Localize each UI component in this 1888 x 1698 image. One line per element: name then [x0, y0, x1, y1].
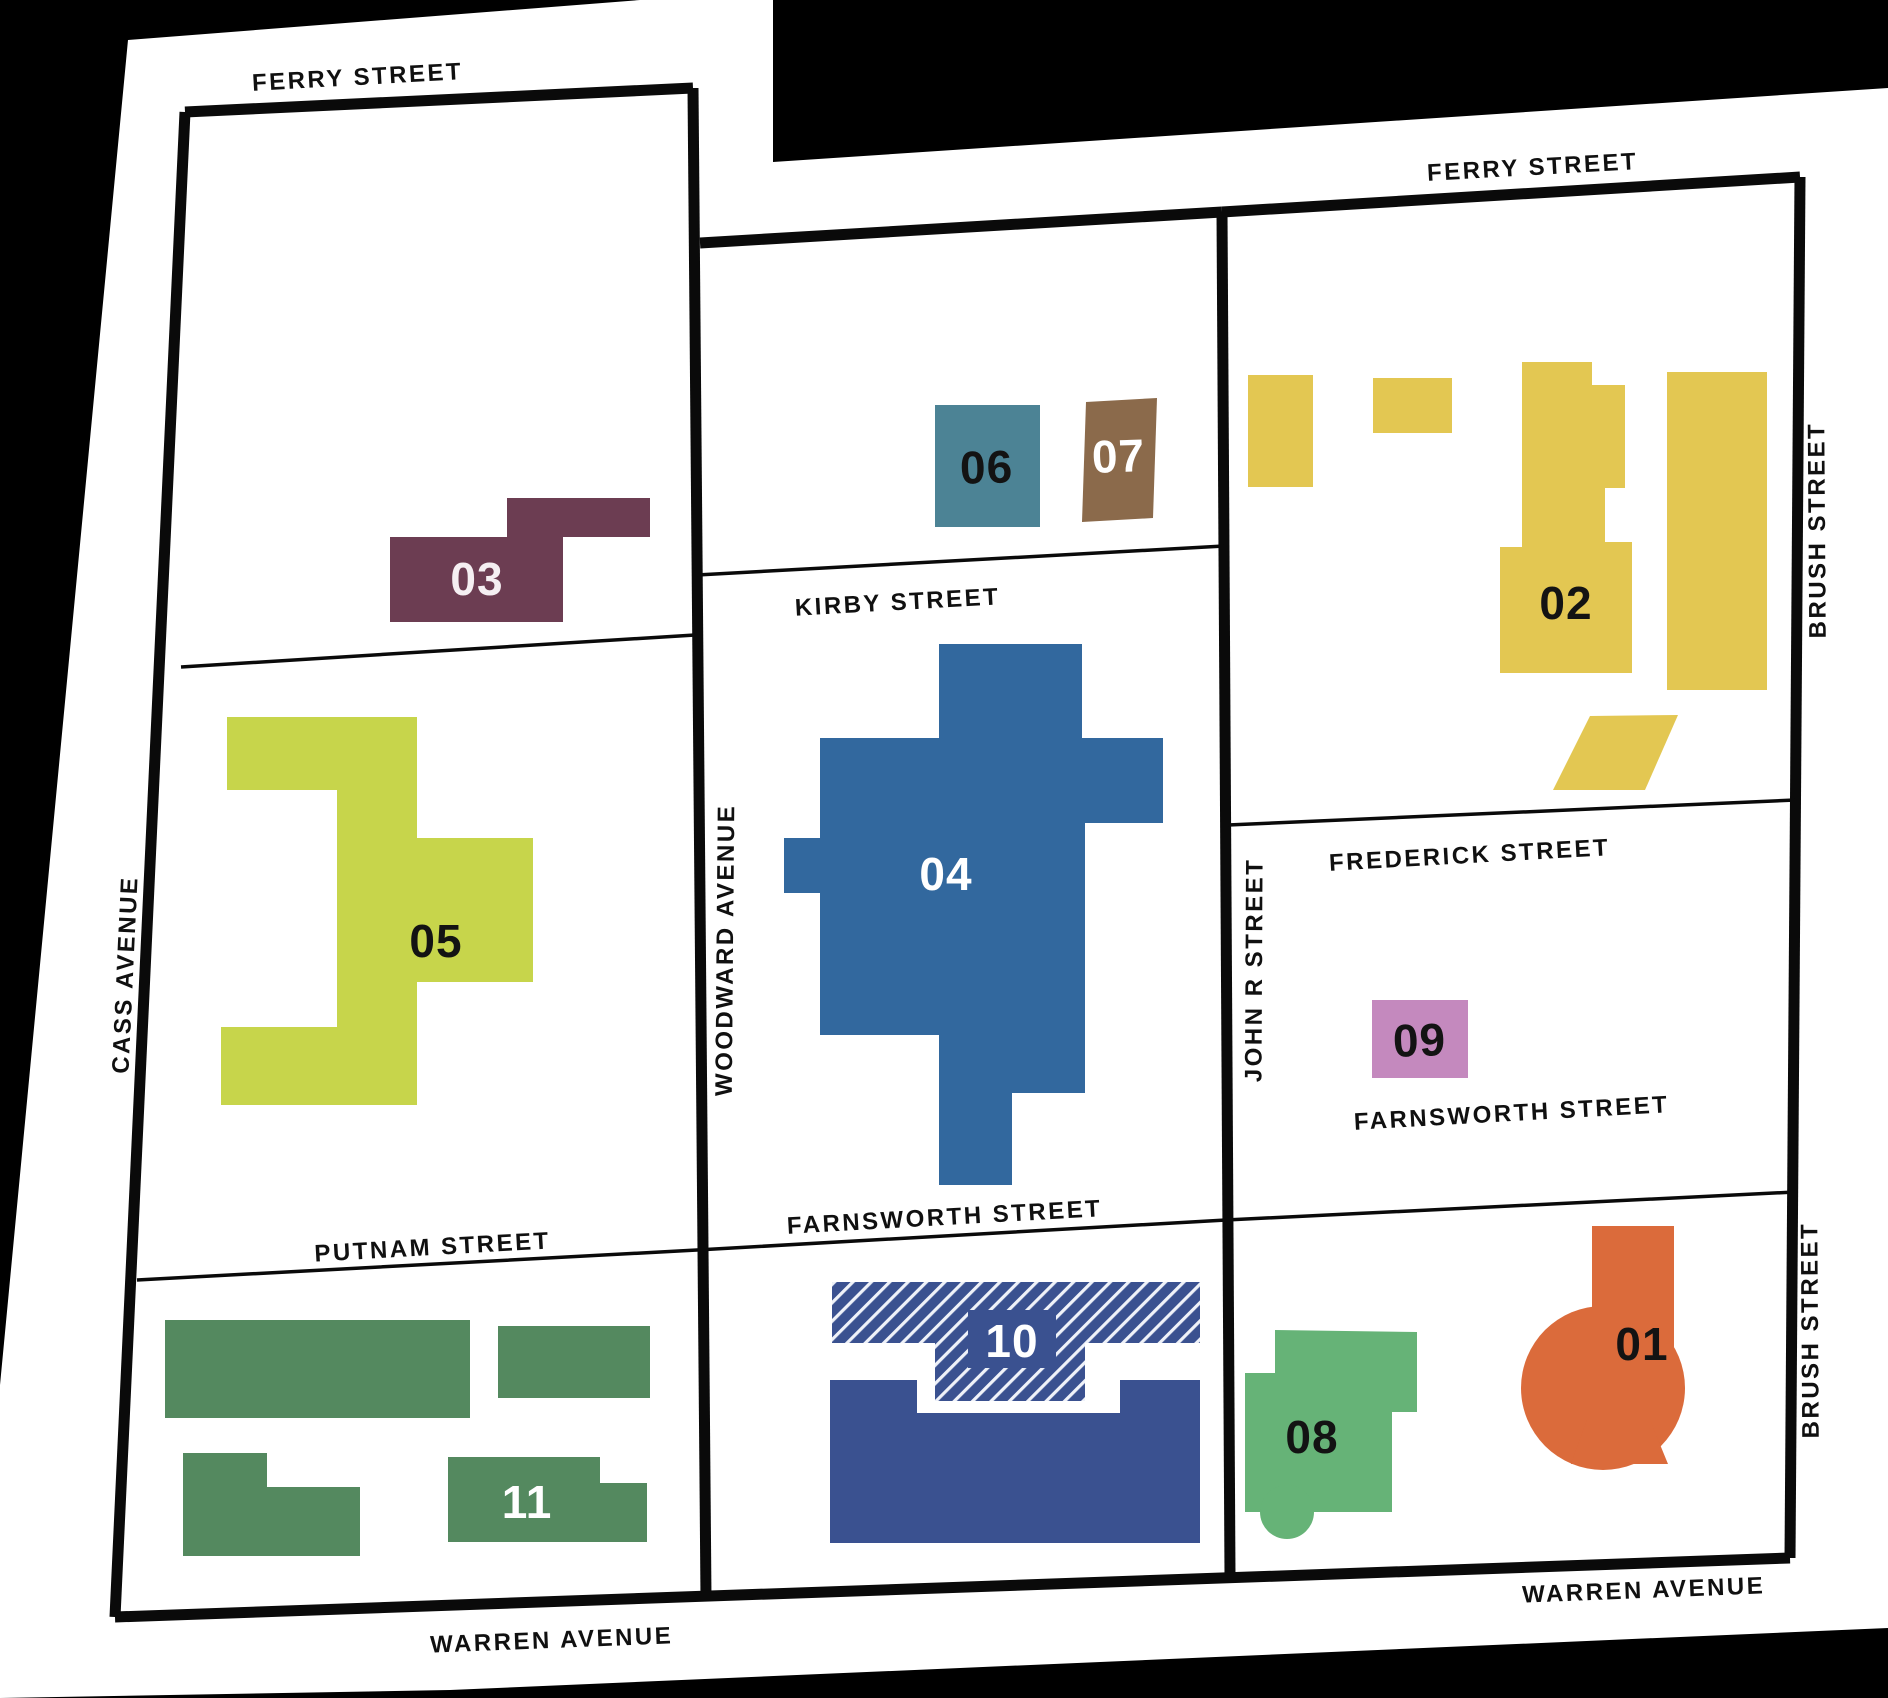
building-04-label: 04 — [919, 848, 972, 900]
building-03-label: 03 — [450, 553, 503, 605]
building-11-label: 11 — [502, 1476, 553, 1528]
building-02-shape-b — [1373, 378, 1452, 433]
building-02-shape-d — [1667, 372, 1767, 690]
building-08-bump — [1260, 1485, 1314, 1539]
building-09: 09 — [1372, 1000, 1468, 1078]
street-label-brush-north: BRUSH STREET — [1803, 422, 1832, 639]
street-label-woodward: WOODWARD AVENUE — [711, 804, 741, 1096]
building-05-label: 05 — [409, 915, 462, 967]
building-01-label: 01 — [1615, 1318, 1668, 1370]
building-07: 07 — [1082, 398, 1157, 522]
street-label-brush-south: BRUSH STREET — [1796, 1222, 1825, 1439]
building-06: 06 — [935, 405, 1040, 527]
building-09-label: 09 — [1392, 1013, 1447, 1067]
building-02-label: 02 — [1539, 577, 1592, 629]
street-label-john-r: JOHN R STREET — [1240, 858, 1268, 1083]
building-08-label: 08 — [1285, 1411, 1338, 1463]
building-11-shape-a — [165, 1320, 470, 1418]
campus-map: 03 05 11 06 07 04 02 09 — [0, 0, 1888, 1698]
building-06-label: 06 — [959, 440, 1014, 493]
building-10-label: 10 — [985, 1315, 1038, 1367]
building-11-shape-b — [498, 1326, 650, 1398]
building-07-label: 07 — [1091, 429, 1146, 483]
building-02-shape-a — [1248, 375, 1313, 487]
